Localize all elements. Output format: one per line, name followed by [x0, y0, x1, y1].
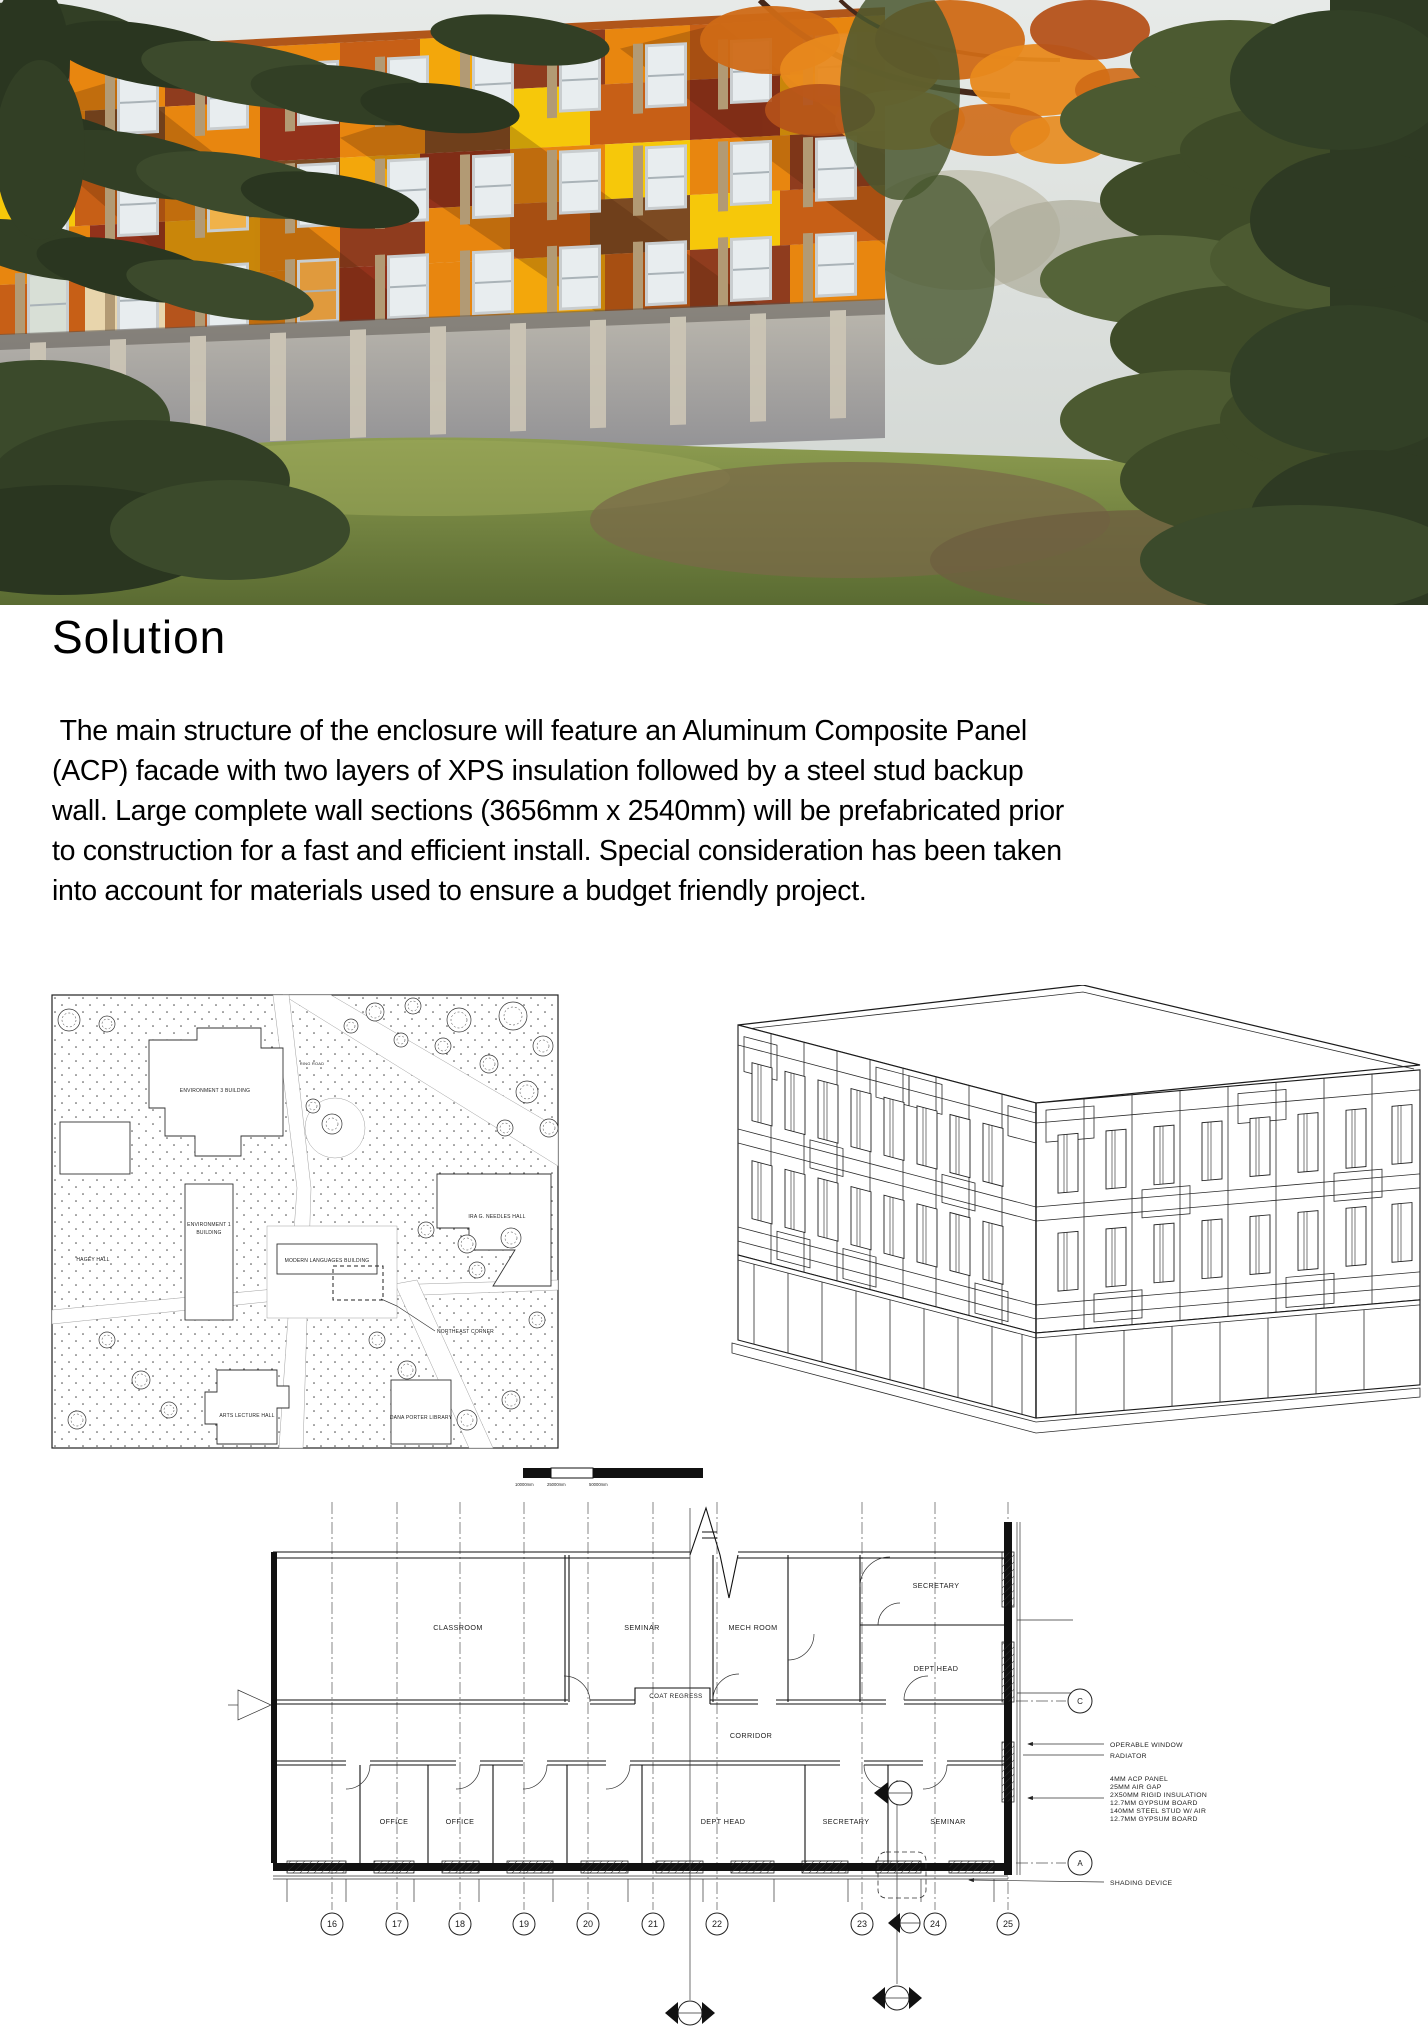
- solution-paragraph: The main structure of the enclosure will…: [52, 712, 1066, 911]
- room-secretary-bottom: SECRETARY: [823, 1817, 870, 1826]
- room-seminar-top: SEMINAR: [624, 1623, 660, 1632]
- svg-text:16: 16: [327, 1919, 337, 1929]
- svg-text:2X50MM RIGID INSULATION: 2X50MM RIGID INSULATION: [1110, 1792, 1207, 1799]
- plan-walls: [228, 1508, 1073, 1902]
- floor-plan-drawing: 16 17 18 19 20 21 22 23 24 25 C A CLASSR…: [228, 1492, 1428, 2028]
- room-seminar-bottom: SEMINAR: [930, 1817, 966, 1826]
- svg-text:21: 21: [648, 1919, 658, 1929]
- wall-assembly-note: 4MM ACP PANEL 25MM AIR GAP 2X50MM RIGID …: [1028, 1776, 1207, 1823]
- label-ring-road: RING ROAD: [300, 1061, 324, 1066]
- scale-bar: 10000mm 25000mm 50000mm: [515, 1468, 703, 1487]
- door-arcs: [346, 1557, 947, 1789]
- svg-text:17: 17: [392, 1919, 402, 1929]
- room-secretary-top: SECRETARY: [913, 1581, 960, 1590]
- svg-text:25: 25: [1003, 1919, 1013, 1929]
- scale-label-3: 50000mm: [589, 1482, 608, 1487]
- label-modern-languages: MODERN LANGUAGES BUILDING: [285, 1258, 370, 1264]
- grid-lines: [332, 1502, 1066, 1910]
- label-northeast-corner: NORTHEAST CORNER: [437, 1329, 494, 1335]
- room-office-2: OFFICE: [446, 1817, 475, 1826]
- label-dana-porter: DANA PORTER LIBRARY: [390, 1415, 453, 1421]
- svg-text:20: 20: [583, 1919, 593, 1929]
- room-corridor: CORRIDOR: [730, 1731, 772, 1740]
- svg-text:23: 23: [857, 1919, 867, 1929]
- annotation-operable-window: OPERABLE WINDOW: [1110, 1742, 1183, 1749]
- annotation-radiator: RADIATOR: [1110, 1753, 1147, 1760]
- ref-bubble-c: C: [1077, 1697, 1083, 1706]
- label-environment-1-l2: BUILDING: [196, 1230, 221, 1236]
- room-classroom: CLASSROOM: [433, 1623, 483, 1632]
- grid-bubbles: 16 17 18 19 20 21 22 23 24 25 C A: [321, 1689, 1092, 1935]
- svg-text:12.7MM GYPSUM BOARD: 12.7MM GYPSUM BOARD: [1110, 1800, 1198, 1807]
- svg-text:12.7MM GYPSUM BOARD: 12.7MM GYPSUM BOARD: [1110, 1816, 1198, 1823]
- scale-label-2: 25000mm: [547, 1482, 566, 1487]
- room-office-1: OFFICE: [380, 1817, 409, 1826]
- page-title: Solution: [52, 610, 226, 664]
- svg-text:19: 19: [519, 1919, 529, 1929]
- site-plan-drawing: ENVIRONMENT 3 BUILDING RING ROAD ENVIRON…: [45, 988, 725, 1493]
- ref-bubble-a: A: [1077, 1859, 1083, 1868]
- label-hagey-hall: HAGEY HALL: [76, 1257, 109, 1263]
- label-environment-3: ENVIRONMENT 3 BUILDING: [180, 1088, 250, 1094]
- svg-text:25MM AIR GAP: 25MM AIR GAP: [1110, 1784, 1162, 1791]
- svg-text:22: 22: [712, 1919, 722, 1929]
- room-dept-head-top: DEPT HEAD: [914, 1664, 959, 1673]
- section-markers: [665, 1508, 926, 2025]
- label-arts-lecture: ARTS LECTURE HALL: [219, 1413, 274, 1419]
- svg-text:24: 24: [930, 1919, 940, 1929]
- scale-label-1: 10000mm: [515, 1482, 534, 1487]
- svg-text:140MM STEEL STUD W/ AIR: 140MM STEEL STUD W/ AIR: [1110, 1808, 1206, 1815]
- room-coat-regress: COAT REGRESS: [649, 1693, 702, 1700]
- axon-right-facade: [1036, 1070, 1420, 1333]
- room-dept-head-bottom: DEPT HEAD: [701, 1817, 746, 1826]
- annotation-shading-device: SHADING DEVICE: [1110, 1880, 1173, 1887]
- svg-text:4MM ACP PANEL: 4MM ACP PANEL: [1110, 1776, 1168, 1783]
- hero-render-image: [0, 0, 1428, 605]
- label-environment-1-l1: ENVIRONMENT 1: [187, 1222, 231, 1228]
- svg-text:18: 18: [455, 1919, 465, 1929]
- axonometric-drawing: [730, 985, 1428, 1455]
- room-mech: MECH ROOM: [728, 1623, 777, 1632]
- label-ira-needles: IRA G. NEEDLES HALL: [468, 1214, 525, 1220]
